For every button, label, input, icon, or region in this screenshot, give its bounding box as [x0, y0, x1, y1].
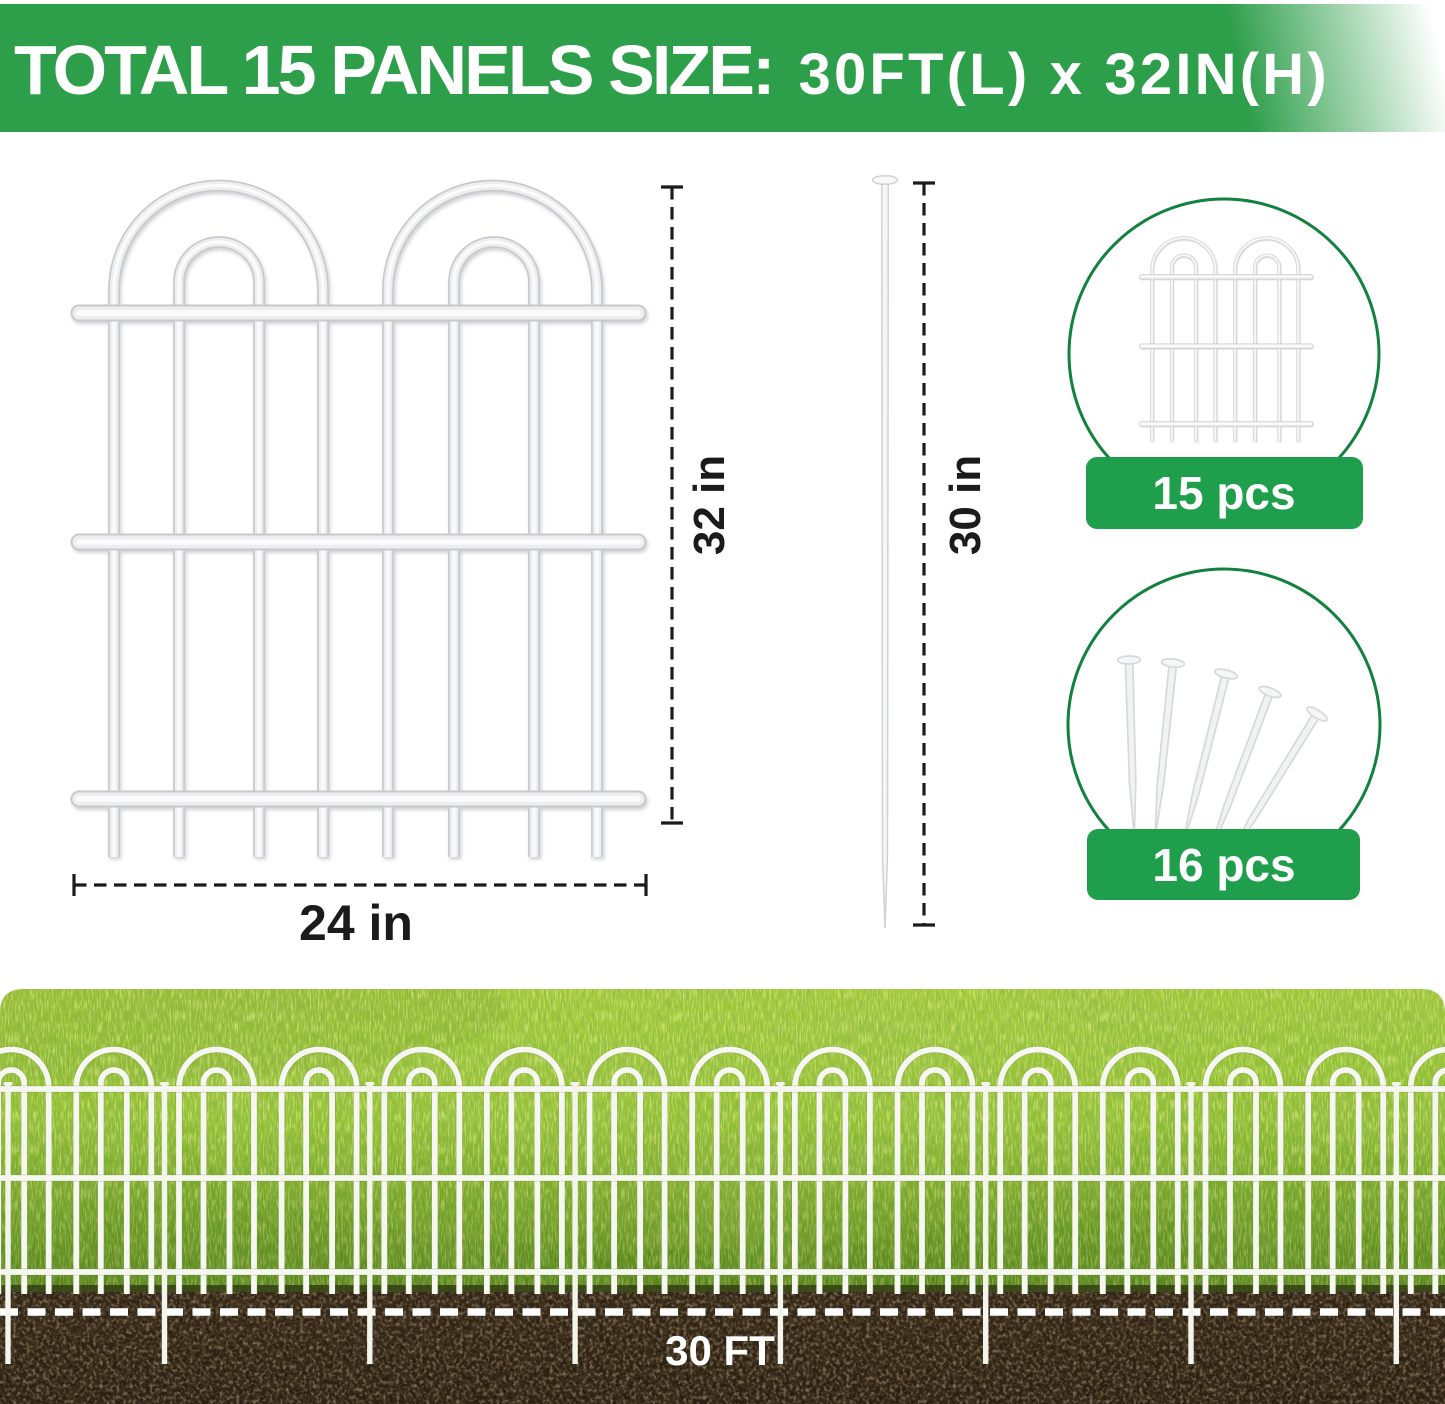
svg-text:30 in: 30 in	[941, 455, 990, 555]
svg-text:24 in: 24 in	[299, 895, 413, 951]
svg-text:32 in: 32 in	[685, 455, 734, 555]
svg-text:15 pcs: 15 pcs	[1152, 467, 1295, 519]
svg-text:16 pcs: 16 pcs	[1152, 839, 1295, 891]
svg-text:30 FT: 30 FT	[665, 1327, 775, 1374]
